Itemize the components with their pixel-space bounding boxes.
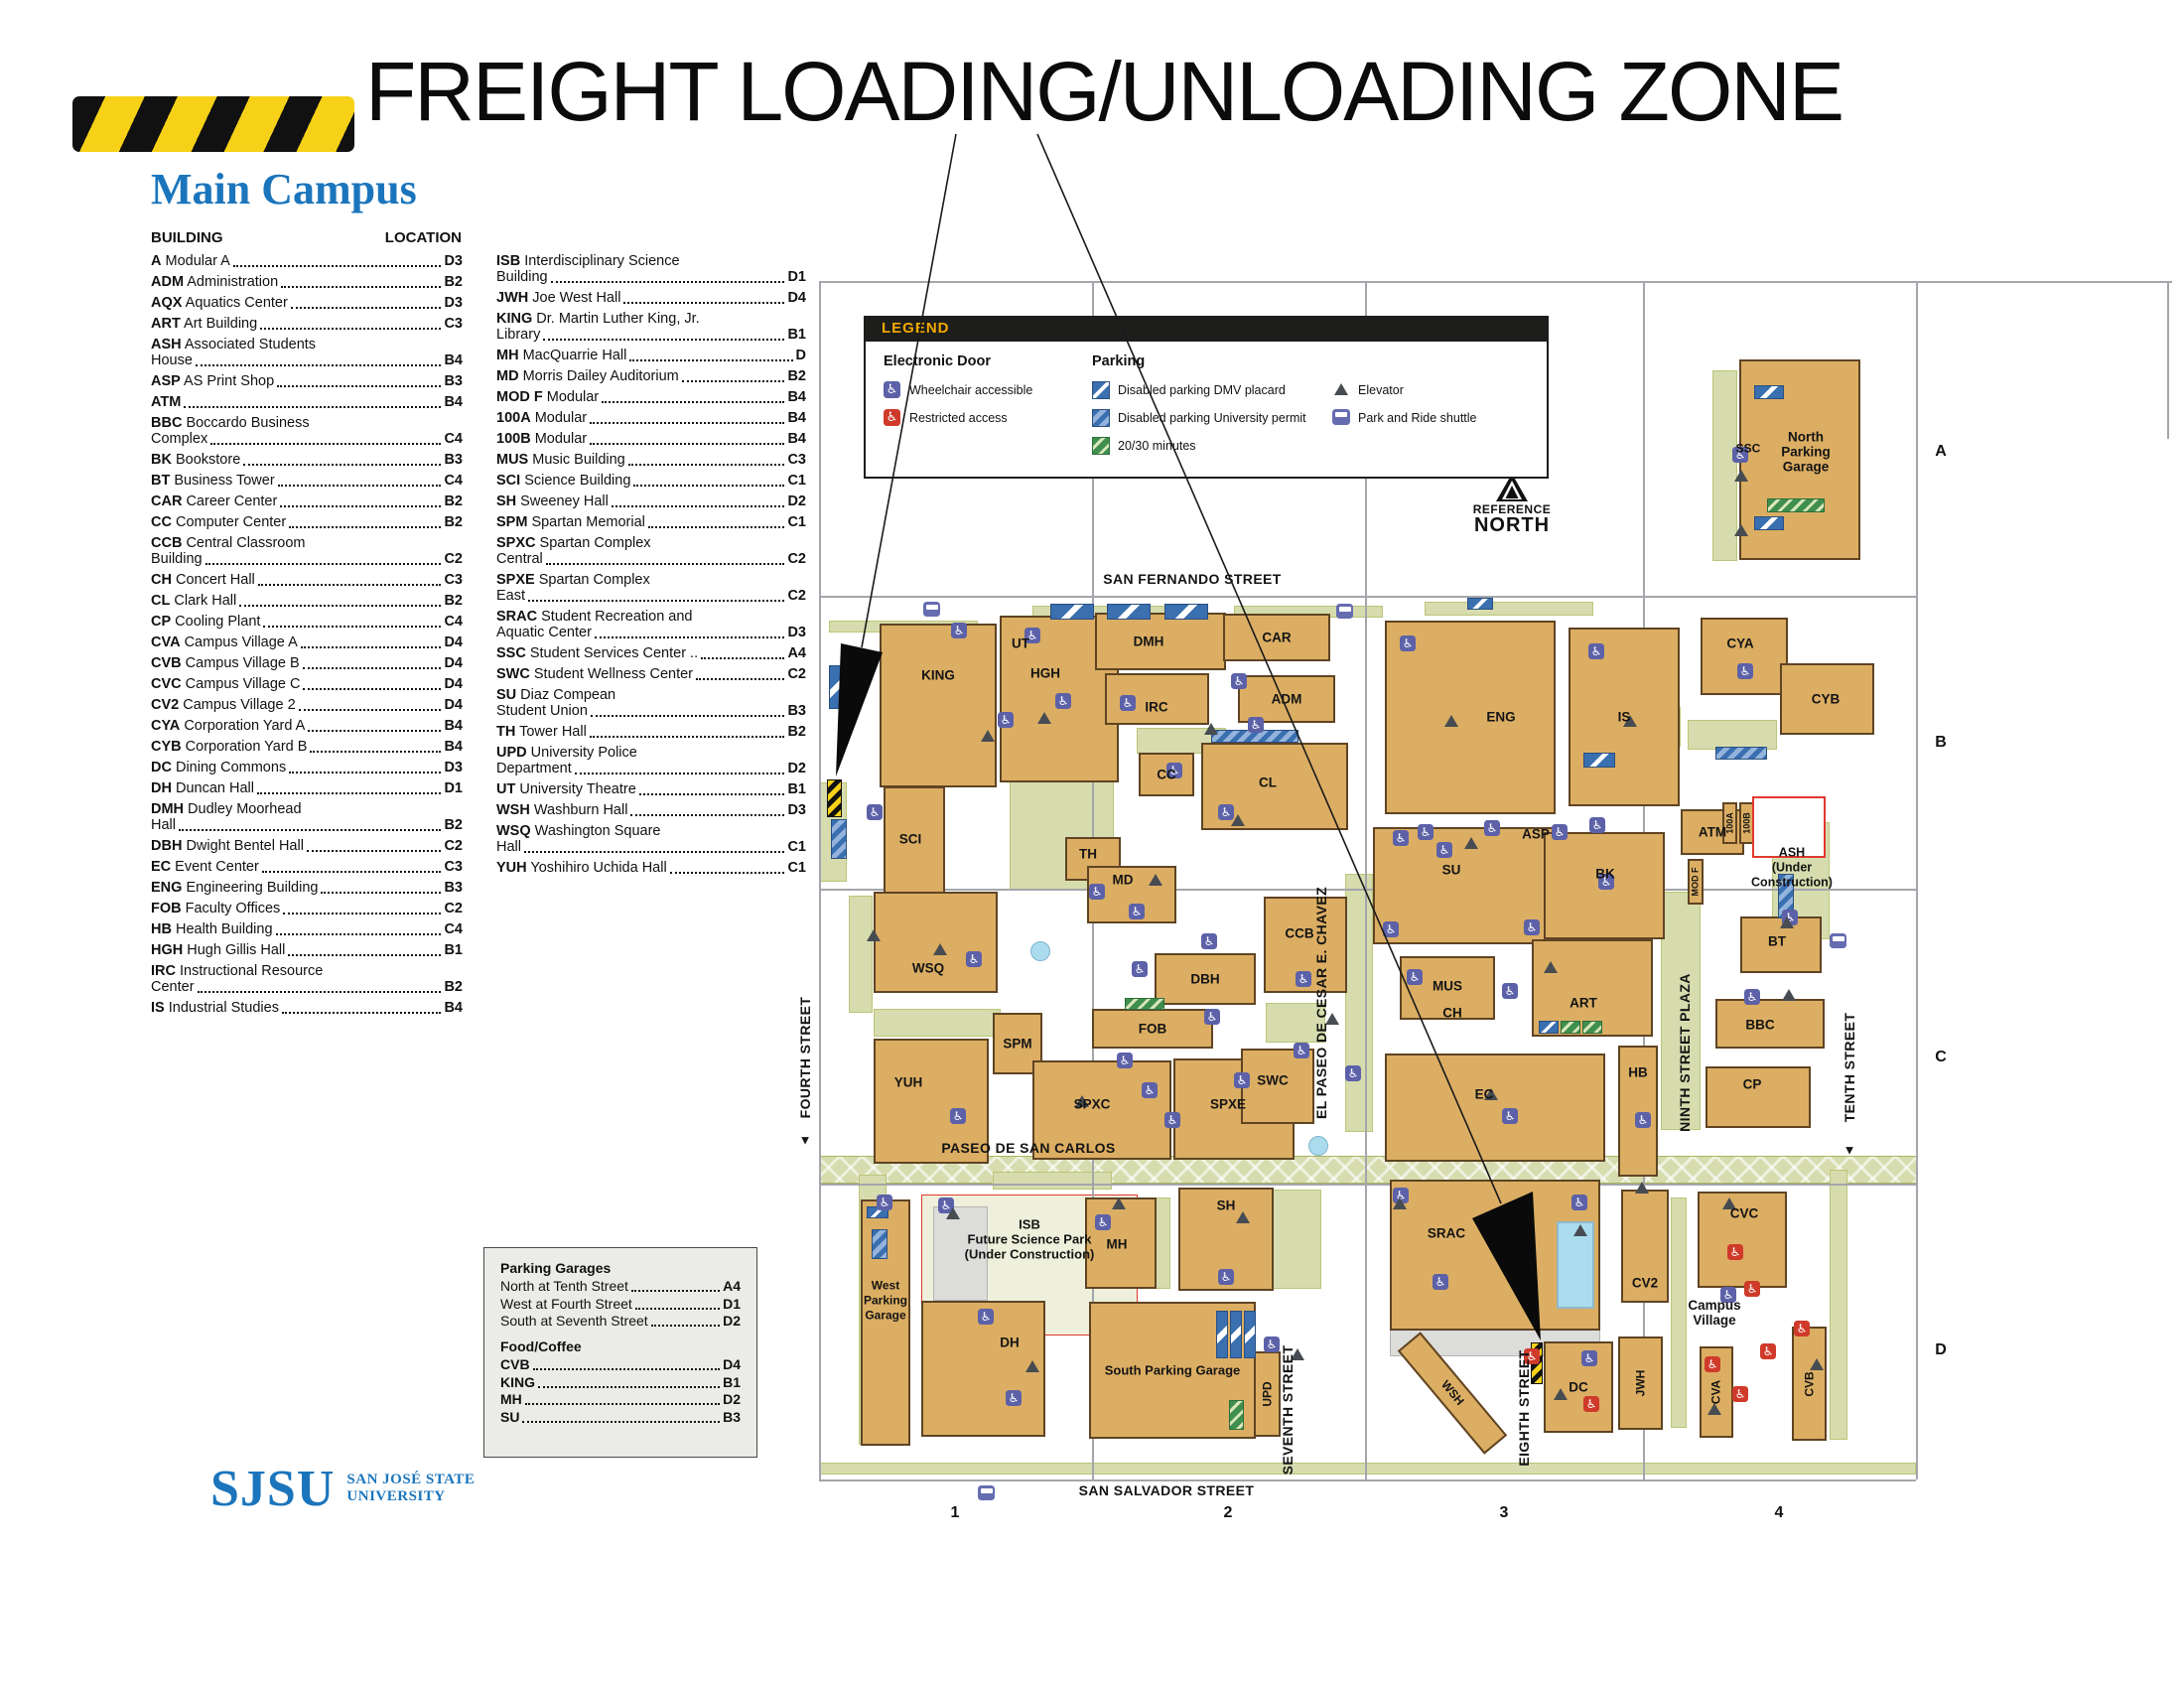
- wheelchair-accessible-icon: ♿: [1484, 820, 1500, 836]
- grid-location: D1: [723, 1296, 741, 1312]
- map-element: UT University Theatre: [496, 781, 636, 797]
- wheelchair-accessible-icon: ♿: [1571, 1195, 1587, 1210]
- map-section-title: Main Campus: [151, 164, 417, 214]
- leader-dots: [546, 563, 785, 565]
- map-element: South at Seventh Street: [500, 1313, 648, 1329]
- map-element: Building: [151, 551, 203, 567]
- grid-location: B4: [444, 394, 463, 410]
- grid-location: D4: [444, 676, 463, 692]
- grid-location: D3: [444, 253, 463, 269]
- grid-location: D4: [444, 655, 463, 671]
- building-label: NorthParkingGarage: [1781, 430, 1831, 475]
- elevator-icon: [1782, 989, 1796, 1001]
- wheelchair-accessible-icon: ♿: [1407, 969, 1423, 985]
- legend-item-label: Wheelchair accessible: [909, 383, 1032, 397]
- legend-item-label: Park and Ride shuttle: [1358, 411, 1477, 425]
- grid-row-label: B: [1935, 734, 1947, 752]
- elevator-icon: [867, 929, 881, 941]
- building-label: DBH: [1190, 972, 1219, 987]
- list-item: HB Health BuildingC4: [151, 921, 463, 937]
- map-element: Aquatic CenterD3: [496, 625, 806, 640]
- legend-title: LEGEND: [864, 316, 1549, 342]
- elevator-icon: [1444, 715, 1458, 727]
- map-element: Student UnionB3: [496, 703, 806, 719]
- map-element: SU Diaz Compean: [496, 687, 806, 703]
- list-item: SH Sweeney HallD2: [496, 493, 806, 509]
- leader-dots: [262, 871, 442, 873]
- grid-row-label: C: [1935, 1049, 1947, 1066]
- leader-dots: [623, 302, 784, 304]
- leader-dots: [524, 851, 784, 853]
- grid-col-label: 1: [951, 1504, 960, 1522]
- leader-dots: [196, 364, 442, 366]
- map-element: BT Business Tower: [151, 473, 275, 489]
- elevator-icon: [1810, 1358, 1824, 1370]
- campus-map: REFERENCE NORTH 1234ABCDSAN FERNANDO STR…: [789, 278, 2184, 1559]
- pond: [1308, 1136, 1328, 1156]
- grid-line: [819, 596, 1916, 598]
- map-element: KING Dr. Martin Luther King, Jr.: [496, 311, 806, 327]
- wheelchair-accessible-icon: ♿: [1294, 1043, 1309, 1058]
- building-cp: [1706, 1066, 1811, 1128]
- wheelchair-accessible-icon: ♿: [1142, 1082, 1158, 1098]
- leader-dots: [308, 730, 441, 732]
- building-label: SWC: [1257, 1073, 1289, 1088]
- street-label: FOURTH STREET: [797, 997, 813, 1119]
- building-label: JWH: [1633, 1370, 1648, 1397]
- leader-dots: [628, 464, 785, 466]
- parking-dmv-stripe: [1583, 753, 1615, 768]
- leader-dots: [179, 829, 441, 831]
- map-element: CYA Corporation Yard A: [151, 718, 305, 734]
- grn-area: [1671, 1197, 1687, 1428]
- parking-2030-stripe: [1229, 1400, 1244, 1430]
- map-element: SRAC Student Recreation and: [496, 609, 806, 625]
- wheelchair-accessible-icon: ♿: [1264, 1336, 1280, 1352]
- wheelchair-accessible-icon: ♿: [1524, 919, 1540, 935]
- wheelchair-accessible-icon: ♿: [1132, 961, 1148, 977]
- wheelchair-accessible-icon: ♿: [1393, 830, 1409, 846]
- list-item: MUS Music BuildingC3: [496, 452, 806, 468]
- map-element: ISB Interdisciplinary Science: [496, 253, 806, 269]
- list-item: CVC Campus Village CD4: [151, 676, 463, 692]
- map-element: IS Industrial Studies: [151, 1000, 279, 1016]
- grid-row-label: A: [1935, 443, 1947, 461]
- parking-dmv-stripe: [1216, 1311, 1228, 1358]
- elevator-icon: [1037, 712, 1051, 724]
- grid-location: B3: [444, 880, 463, 896]
- elevator-icon: [1707, 1403, 1721, 1415]
- grid-location: B4: [444, 718, 463, 734]
- parking-permit-stripe: [872, 1229, 887, 1259]
- building-wsq: [874, 892, 998, 993]
- parking-dmv-stripe: [829, 665, 845, 709]
- map-element: ENG Engineering Building: [151, 880, 318, 896]
- building-label: TH: [1079, 847, 1097, 862]
- map-element: [1339, 607, 1351, 612]
- list-item: CV2 Campus Village 2D4: [151, 697, 463, 713]
- elevator-icon: [1734, 470, 1748, 482]
- elevator-icon: [1112, 1197, 1126, 1209]
- food-coffee-title: Food/Coffee: [500, 1338, 741, 1354]
- grid-location: D3: [444, 760, 463, 775]
- map-element: ASH Associated Students: [151, 337, 463, 352]
- list-item: SCI Science BuildingC1: [496, 473, 806, 489]
- grid-location: C3: [444, 859, 463, 875]
- wheelchair-accessible-icon: ♿: [1345, 1065, 1361, 1081]
- shuttle-legend-icon: [1332, 409, 1350, 425]
- list-item: BT Business TowerC4: [151, 473, 463, 489]
- building-label: MH: [1107, 1237, 1128, 1252]
- grid-col-label: 2: [1224, 1504, 1233, 1522]
- list-item: DMH Dudley MoorheadHallB2: [151, 801, 463, 833]
- wheelchair-accessible-icon: ♿: [1589, 817, 1605, 833]
- grid-location: C4: [444, 921, 463, 937]
- list-item: ADM AdministrationB2: [151, 274, 463, 290]
- list-item: CL Clark HallB2: [151, 593, 463, 609]
- building-label: BBC: [1745, 1018, 1774, 1033]
- building-label: 100A: [1722, 812, 1737, 834]
- map-element: West at Fourth Street: [500, 1296, 632, 1312]
- map-element: [981, 1488, 993, 1493]
- grid-line: [819, 1184, 1916, 1186]
- restricted-access-icon: ♿: [1744, 1281, 1760, 1297]
- map-element: CYB Corporation Yard B: [151, 739, 307, 755]
- grid-location: D1: [444, 780, 463, 796]
- wheelchair-accessible-icon: ♿: [1095, 1214, 1111, 1230]
- wheelchair-accessible-icon: ♿: [1502, 1108, 1518, 1124]
- building-ec: [1385, 1054, 1605, 1162]
- list-item: JWH Joe West HallD4: [496, 290, 806, 306]
- building-label: DMH: [1134, 634, 1164, 649]
- list-item: MHD2: [500, 1391, 741, 1407]
- building-list-column-1: A Modular AD3ADM AdministrationB2AQX Aqu…: [151, 253, 463, 1021]
- wheelchair-accessible-icon: ♿: [1400, 635, 1416, 651]
- map-element: MH: [500, 1391, 522, 1407]
- list-item: South at Seventh StreetD2: [500, 1313, 741, 1329]
- parking-dmv-stripe: [1467, 598, 1493, 610]
- wheelchair-accessible-icon: ♿: [1383, 921, 1399, 937]
- wheelchair-accessible-icon: ♿: [966, 951, 982, 967]
- map-element: CVA Campus Village A: [151, 634, 298, 650]
- elevator-legend-icon: [1334, 383, 1348, 395]
- leader-dots: [538, 1386, 720, 1388]
- building-list-column-2: ISB Interdisciplinary ScienceBuildingD1J…: [496, 253, 806, 881]
- list-header-location: LOCATION: [367, 229, 462, 246]
- building-label: IRC: [1145, 700, 1167, 715]
- building-label: CAR: [1262, 631, 1291, 645]
- map-element: JWH Joe West Hall: [496, 290, 620, 306]
- elevator-icon: [1734, 524, 1748, 536]
- leader-dots: [239, 605, 441, 607]
- building-label: HGH: [1030, 666, 1060, 681]
- building-label: CVB: [1802, 1371, 1817, 1396]
- map-element: ADM Administration: [151, 274, 278, 290]
- street-label: PASEO DE SAN CARLOS: [941, 1140, 1115, 1156]
- leader-dots: [648, 526, 785, 528]
- list-item: DC Dining CommonsD3: [151, 760, 463, 775]
- map-element: Library: [496, 327, 540, 343]
- leader-dots: [257, 792, 441, 794]
- leader-dots: [307, 850, 442, 852]
- wheelchair-accessible-icon: ♿: [1296, 971, 1311, 987]
- street-label: EIGHTH STREET: [1516, 1349, 1532, 1466]
- elevator-icon: [1025, 1360, 1039, 1372]
- street-label: SAN SALVADOR STREET: [1079, 1482, 1255, 1498]
- grid-location: C2: [444, 838, 463, 854]
- map-element: Aquatic Center: [496, 625, 592, 640]
- map-element: Hall: [496, 839, 521, 855]
- leader-dots: [291, 307, 442, 309]
- wheelchair-accessible-icon: ♿: [1248, 717, 1264, 733]
- leader-dots: [281, 286, 441, 288]
- grid-location: B3: [444, 373, 463, 389]
- leader-dots: [701, 657, 784, 659]
- map-element: ATM: [151, 394, 181, 410]
- list-item: ENG Engineering BuildingB3: [151, 880, 463, 896]
- parking-dmv-stripe: [1539, 1021, 1559, 1034]
- map-element: CH Concert Hall: [151, 572, 255, 588]
- grid-location: C2: [444, 551, 463, 567]
- wheelchair-accessible-icon: ♿: [1129, 904, 1145, 919]
- map-element: SWC Student Wellness Center: [496, 666, 693, 682]
- leader-dots: [277, 385, 441, 387]
- map-element: DH Duncan Hall: [151, 780, 254, 796]
- leader-dots: [551, 281, 785, 283]
- elevator-icon: [1573, 1224, 1587, 1236]
- wheelchair-accessible-icon: ♿: [1117, 1053, 1133, 1068]
- list-item: WSH Washburn HallD3: [496, 802, 806, 818]
- wheelchair-accessible-icon: ♿: [1204, 1009, 1220, 1025]
- grid-col-label: 4: [1775, 1504, 1784, 1522]
- grid-location: D2: [723, 1391, 741, 1407]
- building-label: CP: [1743, 1077, 1762, 1092]
- elevator-icon: [1780, 916, 1794, 928]
- list-item: CVB Campus Village BD4: [151, 655, 463, 671]
- list-item: ATMB4: [151, 394, 463, 410]
- building-label: BT: [1768, 934, 1786, 949]
- parking-2030-stripe: [1561, 1021, 1580, 1034]
- leader-dots: [310, 751, 441, 753]
- leader-dots: [260, 328, 441, 330]
- street-arrow-icon: ▼: [799, 1133, 812, 1148]
- leader-dots: [533, 1368, 721, 1370]
- grid-location: C3: [444, 316, 463, 332]
- building-label: ADM: [1272, 692, 1302, 707]
- map-element: CCB Central Classroom: [151, 535, 463, 551]
- parking-dmv-stripe: [1244, 1311, 1256, 1358]
- map-element: CV2 Campus Village 2: [151, 697, 296, 713]
- map-element: DMH Dudley Moorhead: [151, 801, 463, 817]
- grid-location: B3: [444, 452, 463, 468]
- wc-legend-icon: ♿: [884, 381, 900, 398]
- elevator-icon: [1635, 1182, 1649, 1194]
- map-element: SPXC Spartan Complex: [496, 535, 806, 551]
- building-label: CYA: [1726, 636, 1753, 651]
- map-element: BK Bookstore: [151, 452, 240, 468]
- list-item: ART Art BuildingC3: [151, 316, 463, 332]
- grid-line: [2167, 281, 2169, 439]
- leader-dots: [280, 505, 441, 507]
- leader-dots: [263, 626, 441, 628]
- grn-area: [1345, 874, 1373, 1132]
- wheelchair-accessible-icon: ♿: [877, 1195, 892, 1210]
- map-element: [926, 605, 938, 610]
- building-label: CCB: [1285, 926, 1313, 941]
- grid-location: B2: [444, 817, 463, 833]
- building-label: SU: [1442, 863, 1461, 878]
- map-element: MOD F Modular: [496, 389, 599, 405]
- dmv-placard-icon: [1092, 381, 1110, 399]
- map-element: YUH Yoshihiro Uchida Hall: [496, 860, 667, 876]
- leader-dots: [651, 1325, 720, 1327]
- leader-dots: [289, 526, 441, 528]
- elevator-icon: [1149, 874, 1162, 886]
- map-element: Hall: [151, 817, 176, 833]
- wheelchair-accessible-icon: ♿: [1737, 663, 1753, 679]
- wheelchair-accessible-icon: ♿: [1433, 1274, 1448, 1290]
- list-item: West at Fourth StreetD1: [500, 1296, 741, 1312]
- map-element: SPM Spartan Memorial: [496, 514, 645, 530]
- elevator-icon: [1554, 1388, 1568, 1400]
- map-element: CenterB2: [151, 979, 463, 995]
- grid-row-label: D: [1935, 1341, 1947, 1359]
- map-element: KING: [500, 1374, 535, 1390]
- wheelchair-accessible-icon: ♿: [1231, 673, 1247, 689]
- leader-dots: [595, 636, 785, 638]
- leader-dots: [525, 1403, 720, 1405]
- parking-food-box: Parking Garages North at Tenth StreetA4W…: [483, 1247, 757, 1458]
- map-element: CAR Career Center: [151, 493, 277, 509]
- sjsu-acronym: SJSU: [210, 1468, 335, 1511]
- list-item: 100A ModularB4: [496, 410, 806, 426]
- map-element: MD Morris Dailey Auditorium: [496, 368, 679, 384]
- grn-area: [819, 1463, 1916, 1475]
- list-item: IS Industrial StudiesB4: [151, 1000, 463, 1016]
- map-label-ch: CH: [1442, 1006, 1462, 1021]
- wheelchair-accessible-icon: ♿: [1418, 824, 1433, 840]
- map-element: FOB Faculty Offices: [151, 901, 280, 916]
- grn-area: [1688, 720, 1777, 750]
- restricted-access-icon: ♿: [1705, 1356, 1720, 1372]
- map-element: HallB2: [151, 817, 463, 833]
- map-element: CC Computer Center: [151, 514, 286, 530]
- pond: [1030, 941, 1050, 961]
- map-element: LibraryB1: [496, 327, 806, 343]
- parking-garages-list: North at Tenth StreetA4West at Fourth St…: [500, 1278, 741, 1329]
- wheelchair-accessible-icon: ♿: [1089, 884, 1105, 900]
- restricted-access-icon: ♿: [1583, 1396, 1599, 1412]
- leader-dots: [321, 892, 441, 894]
- elevator-icon: [1236, 1211, 1250, 1223]
- map-element: SH Sweeney Hall: [496, 493, 609, 509]
- grid-location: C2: [444, 901, 463, 916]
- list-item: FOB Faculty OfficesC2: [151, 901, 463, 916]
- map-element: Student Union: [496, 703, 588, 719]
- map-label-ssc: SSC: [1736, 442, 1761, 457]
- wheelchair-accessible-icon: ♿: [1120, 695, 1136, 711]
- parking-permit-stripe: [1715, 747, 1767, 760]
- map-element: EC Event Center: [151, 859, 259, 875]
- building-label: CC: [1157, 768, 1176, 782]
- leader-dots: [575, 773, 785, 774]
- elevator-icon: [933, 943, 947, 955]
- leader-dots: [696, 678, 784, 680]
- leader-dots: [258, 584, 442, 586]
- map-element: TH Tower Hall: [496, 724, 587, 740]
- legend: LEGENDElectronic Door♿Wheelchair accessi…: [864, 316, 1549, 479]
- leader-dots: [682, 380, 785, 382]
- building-label: CVA: [1709, 1380, 1724, 1404]
- wheelchair-accessible-icon: ♿: [1744, 989, 1760, 1005]
- map-element: North at Tenth Street: [500, 1278, 628, 1294]
- map-element: Complex: [151, 431, 207, 447]
- leader-dots: [522, 1421, 720, 1423]
- leader-dots: [639, 793, 785, 795]
- leader-dots: [282, 1012, 441, 1014]
- leader-dots: [283, 913, 441, 914]
- map-element: WSQ Washington Square: [496, 823, 806, 839]
- leader-dots: [633, 485, 784, 487]
- res-legend-icon: ♿: [884, 409, 900, 426]
- building-label: WSQ: [912, 961, 944, 976]
- leader-dots: [276, 933, 442, 935]
- restricted-access-icon: ♿: [1760, 1343, 1776, 1359]
- leader-dots: [198, 991, 442, 993]
- parking-permit-stripe: [831, 819, 847, 859]
- map-element: ART Art Building: [151, 316, 257, 332]
- list-item: CAR Career CenterB2: [151, 493, 463, 509]
- list-item: ISB Interdisciplinary ScienceBuildingD1: [496, 253, 806, 285]
- grid-location: C4: [444, 431, 463, 447]
- leader-dots: [210, 443, 441, 445]
- leader-dots: [635, 1308, 720, 1310]
- map-element: EastC2: [496, 588, 806, 604]
- building-label: CL: [1259, 775, 1277, 790]
- map-element: 100A Modular: [496, 410, 587, 426]
- restricted-access-icon: ♿: [1727, 1244, 1743, 1260]
- map-element: CVC Campus Village C: [151, 676, 300, 692]
- leader-dots: [289, 772, 441, 774]
- map-element: 100B Modular: [496, 431, 587, 447]
- grid-location: B4: [444, 1000, 463, 1016]
- leader-dots: [184, 406, 441, 408]
- list-item: YUH Yoshihiro Uchida HallC1: [496, 860, 806, 876]
- legend-item-label: Restricted access: [909, 411, 1008, 425]
- legend-heading: Electronic Door: [884, 353, 991, 369]
- list-item: UT University TheatreB1: [496, 781, 806, 797]
- map-element: SSC Student Services Center ..: [496, 645, 698, 661]
- grid-location: C3: [444, 572, 463, 588]
- building-label: ART: [1570, 996, 1597, 1011]
- building-label: CVC: [1730, 1206, 1759, 1221]
- list-item: CP Cooling PlantC4: [151, 614, 463, 630]
- building-label: KING: [921, 668, 955, 683]
- wheelchair-accessible-icon: ♿: [867, 804, 883, 820]
- leader-dots: [630, 814, 784, 816]
- leader-dots: [303, 667, 442, 669]
- university-permit-icon: [1092, 409, 1110, 427]
- map-element: Central: [496, 551, 543, 567]
- map-element: MUS Music Building: [496, 452, 625, 468]
- list-item: SWC Student Wellness CenterC2: [496, 666, 806, 682]
- map-label-campus: CampusVillage: [1688, 1298, 1740, 1328]
- map-element: UPD University Police: [496, 745, 806, 761]
- grid-location: D3: [444, 295, 463, 311]
- north-label: NORTH: [1457, 514, 1567, 537]
- list-item: A Modular AD3: [151, 253, 463, 269]
- grn-area: [993, 1172, 1112, 1190]
